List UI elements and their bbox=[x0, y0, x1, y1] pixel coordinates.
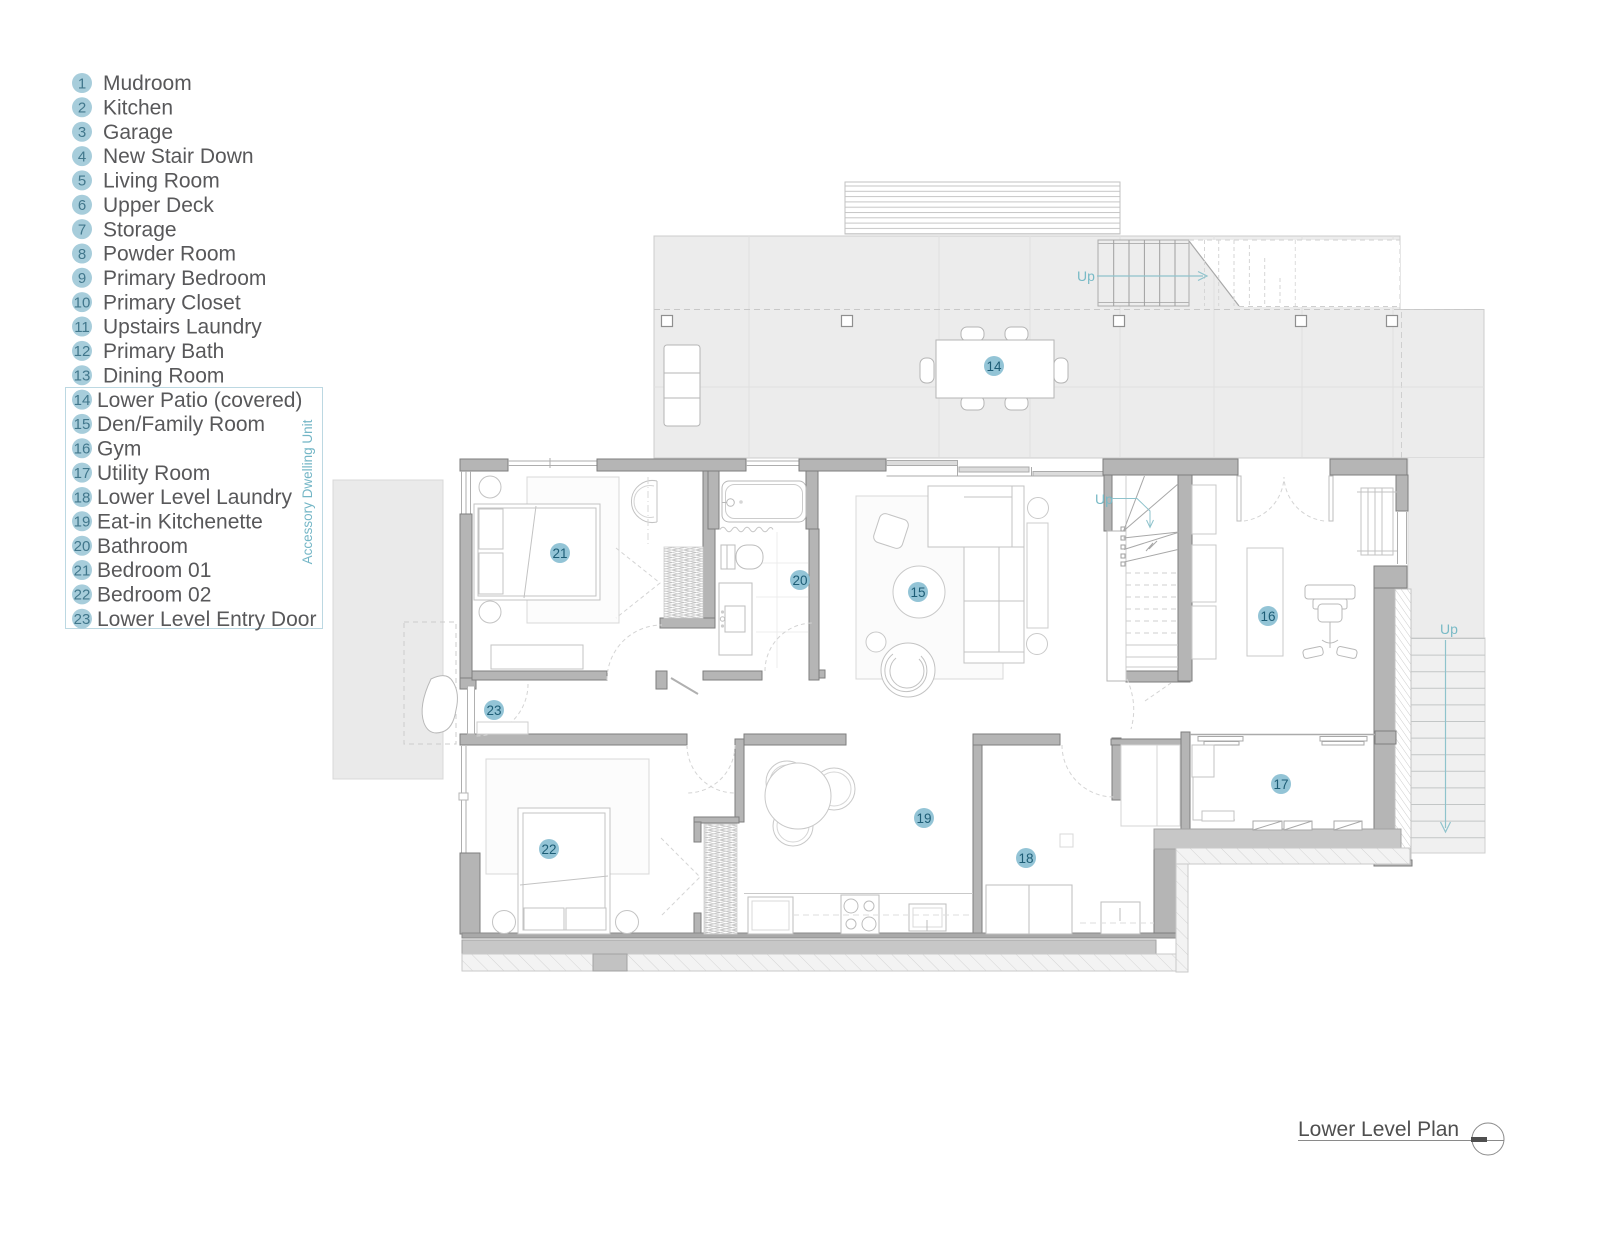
svg-text:Gym: Gym bbox=[97, 437, 141, 460]
svg-text:2: 2 bbox=[78, 100, 86, 117]
svg-text:23: 23 bbox=[74, 611, 91, 628]
svg-text:Accessory Dwelling Unit: Accessory Dwelling Unit bbox=[300, 419, 315, 564]
svg-text:13: 13 bbox=[74, 368, 91, 385]
svg-text:Living Room: Living Room bbox=[103, 170, 220, 193]
svg-text:5: 5 bbox=[78, 173, 86, 190]
svg-text:3: 3 bbox=[78, 124, 86, 141]
svg-text:Primary Bath: Primary Bath bbox=[103, 340, 224, 363]
svg-text:20: 20 bbox=[74, 538, 91, 555]
svg-text:Lower Level Laundry: Lower Level Laundry bbox=[97, 486, 292, 509]
svg-text:14: 14 bbox=[74, 392, 91, 409]
svg-text:19: 19 bbox=[916, 811, 931, 826]
svg-text:14: 14 bbox=[986, 359, 1002, 374]
svg-text:4: 4 bbox=[78, 148, 86, 165]
svg-text:Kitchen: Kitchen bbox=[103, 97, 173, 120]
svg-text:21: 21 bbox=[74, 562, 91, 579]
svg-text:18: 18 bbox=[74, 489, 91, 506]
svg-text:23: 23 bbox=[486, 703, 501, 718]
svg-text:Bedroom 01: Bedroom 01 bbox=[97, 559, 211, 582]
svg-text:20: 20 bbox=[792, 573, 807, 588]
svg-text:22: 22 bbox=[541, 842, 556, 857]
svg-text:10: 10 bbox=[74, 294, 91, 311]
svg-text:12: 12 bbox=[74, 343, 91, 360]
svg-text:19: 19 bbox=[74, 514, 91, 531]
svg-text:1: 1 bbox=[78, 75, 86, 92]
svg-text:Up: Up bbox=[1440, 621, 1458, 637]
svg-text:16: 16 bbox=[1260, 609, 1275, 624]
svg-text:7: 7 bbox=[78, 221, 86, 238]
svg-text:17: 17 bbox=[74, 465, 91, 482]
svg-text:Lower Patio (covered): Lower Patio (covered) bbox=[97, 389, 302, 412]
svg-text:Primary Bedroom: Primary Bedroom bbox=[103, 267, 266, 290]
svg-text:Lower Level Entry Door: Lower Level Entry Door bbox=[97, 608, 316, 631]
svg-text:Den/Family Room: Den/Family Room bbox=[97, 413, 265, 436]
svg-text:8: 8 bbox=[78, 246, 86, 263]
svg-text:Powder Room: Powder Room bbox=[103, 243, 236, 266]
svg-text:11: 11 bbox=[74, 319, 90, 336]
svg-text:Bathroom: Bathroom bbox=[97, 535, 188, 558]
svg-text:New Stair Down: New Stair Down bbox=[103, 145, 254, 168]
svg-text:15: 15 bbox=[910, 585, 925, 600]
svg-text:Eat-in Kitchenette: Eat-in Kitchenette bbox=[97, 511, 263, 534]
svg-text:Up: Up bbox=[1095, 491, 1113, 507]
svg-text:Lower Level Plan: Lower Level Plan bbox=[1298, 1118, 1459, 1141]
svg-text:Up: Up bbox=[1077, 268, 1095, 284]
svg-text:18: 18 bbox=[1018, 851, 1033, 866]
svg-text:Garage: Garage bbox=[103, 121, 173, 144]
svg-text:6: 6 bbox=[78, 197, 86, 214]
svg-text:Mudroom: Mudroom bbox=[103, 72, 192, 95]
svg-text:Bedroom 02: Bedroom 02 bbox=[97, 584, 211, 607]
svg-text:Utility Room: Utility Room bbox=[97, 462, 210, 485]
svg-text:Upper Deck: Upper Deck bbox=[103, 194, 214, 217]
svg-text:16: 16 bbox=[74, 441, 91, 458]
svg-text:22: 22 bbox=[74, 587, 91, 604]
svg-text:Upstairs Laundry: Upstairs Laundry bbox=[103, 316, 262, 339]
svg-text:15: 15 bbox=[74, 416, 91, 433]
svg-text:17: 17 bbox=[1273, 777, 1288, 792]
svg-text:9: 9 bbox=[78, 270, 86, 287]
svg-text:21: 21 bbox=[552, 546, 567, 561]
svg-text:Storage: Storage bbox=[103, 218, 177, 241]
svg-text:Dining Room: Dining Room bbox=[103, 364, 224, 387]
svg-text:Primary Closet: Primary Closet bbox=[103, 291, 241, 314]
